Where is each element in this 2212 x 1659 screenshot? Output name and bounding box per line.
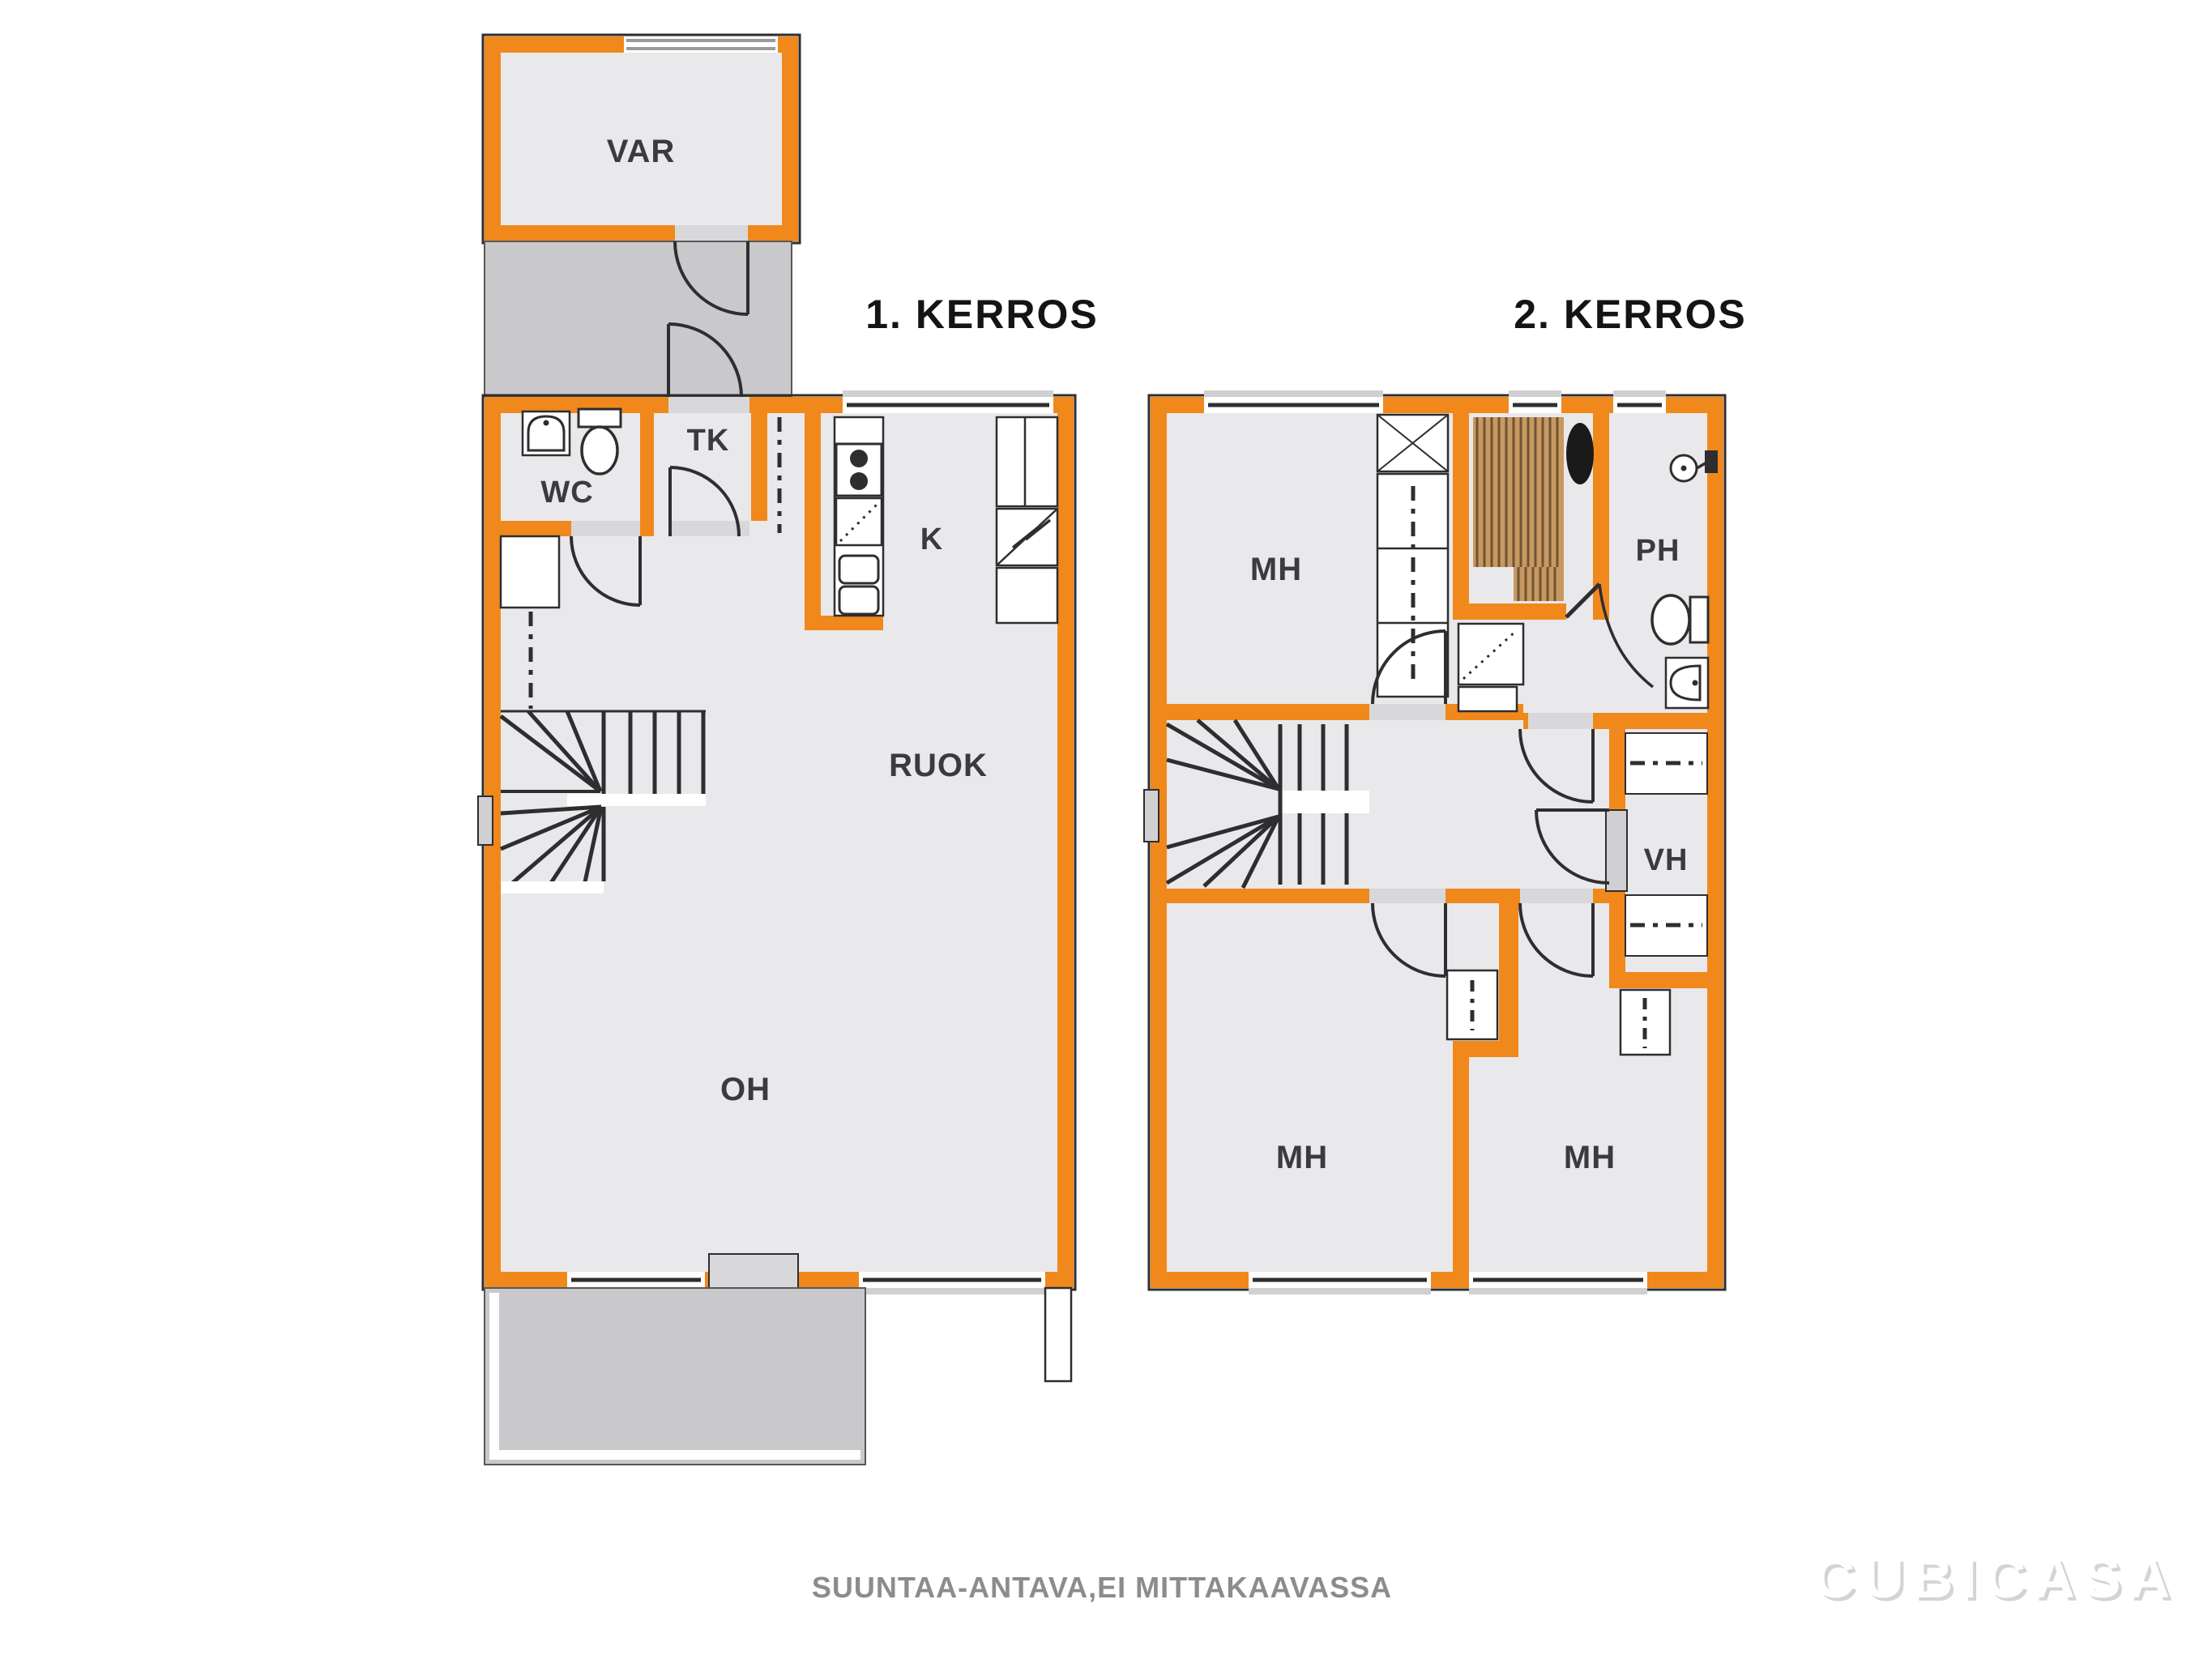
entry-door-opening xyxy=(668,397,749,413)
room-label-var: VAR xyxy=(607,134,675,169)
terrace xyxy=(485,1288,1071,1465)
kitchen-counter xyxy=(835,417,883,616)
wc-door-opening xyxy=(571,521,640,536)
floor1-title: 1. KERROS xyxy=(865,292,1099,337)
window-icon xyxy=(1613,390,1666,413)
room-label-wc: WC xyxy=(540,476,593,510)
window-icon xyxy=(843,390,1053,413)
toilet-icon xyxy=(1652,595,1708,644)
var-door-opening xyxy=(675,225,748,241)
room-label-oh: OH xyxy=(720,1072,771,1107)
cubicasa-logo: CUBICASA CUBICASA xyxy=(1814,1546,2181,1613)
window-icon xyxy=(1249,1272,1431,1294)
room-label-mh-bottom-left: MH xyxy=(1276,1140,1328,1175)
window-icon xyxy=(624,36,778,53)
window-icon xyxy=(1509,390,1561,413)
stair-window xyxy=(478,796,493,845)
room-label-ruok: RUOK xyxy=(889,748,988,783)
floorplan-canvas: VAR WC TK K RUOK OH xyxy=(0,0,2212,1659)
room-label-tk: TK xyxy=(687,424,730,458)
window-icon xyxy=(859,1272,1045,1294)
room-label-vh: VH xyxy=(1644,843,1689,877)
wardrobe-icon xyxy=(1377,415,1448,697)
stair-window xyxy=(1144,790,1159,842)
toilet-icon xyxy=(579,409,621,474)
dishwasher-icon xyxy=(836,498,882,545)
window-icon xyxy=(1204,390,1383,413)
disclaimer-note: SUUNTAA-ANTAVA,EI MITTAKAAVASSA xyxy=(812,1571,1392,1604)
porch xyxy=(485,241,792,397)
fridge-icon xyxy=(997,417,1057,623)
window-icon xyxy=(1469,1272,1647,1294)
railing xyxy=(1045,1288,1071,1381)
washer-icon xyxy=(1458,624,1523,684)
vh-door-jamb xyxy=(1606,810,1627,891)
freezer-icon xyxy=(997,509,1057,565)
room-label-k: K xyxy=(920,522,943,557)
sauna-stove-icon xyxy=(1566,423,1594,484)
wardrobe-icon xyxy=(1621,990,1670,1055)
stove-icon xyxy=(836,444,882,496)
room-label-ph: PH xyxy=(1636,534,1680,568)
floor2-title: 2. KERROS xyxy=(1514,292,1747,337)
room-label-mh-bottom-right: MH xyxy=(1564,1140,1616,1175)
floor1-plan: VAR WC TK K RUOK OH xyxy=(478,35,1075,1465)
room-label-mh-top: MH xyxy=(1250,552,1302,587)
floor2-plan: MH PH VH MH MH xyxy=(1144,390,1725,1294)
sink-icon xyxy=(523,412,570,455)
sink-icon xyxy=(1666,658,1708,708)
cabinet xyxy=(1458,687,1517,711)
wardrobe-icon xyxy=(1447,970,1497,1039)
logo-text: CUBICASA xyxy=(1814,1546,2178,1610)
